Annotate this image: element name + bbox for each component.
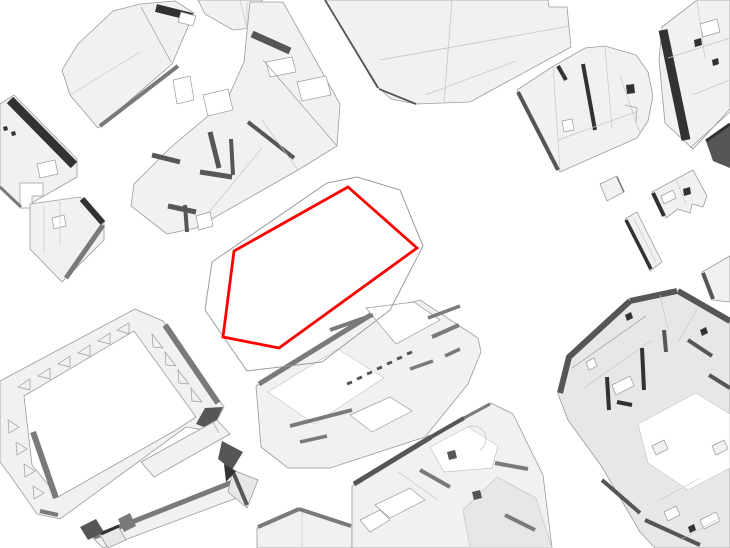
block-courtyard-u — [0, 309, 224, 519]
block-bar-east — [625, 212, 662, 271]
block-bar-east-shape — [625, 212, 662, 271]
block-striped-shape — [367, 372, 372, 374]
block-small-rect-shape — [600, 176, 624, 201]
block-bottom-right-mega-shape — [607, 377, 609, 410]
block-center-left-complex-shape — [231, 139, 233, 175]
block-left-second — [30, 197, 104, 282]
block-bottom-right-mega-shape — [664, 330, 666, 352]
block-striped-shape — [387, 362, 392, 364]
block-top-right-mid-shape — [626, 84, 635, 94]
block-center-left-complex-shape — [185, 205, 187, 232]
block-striped-shape — [377, 367, 382, 369]
block-striped-shape — [347, 382, 352, 384]
block-small-rect — [600, 176, 624, 201]
map-canvas[interactable] — [0, 0, 730, 548]
block-bottom-right-mega — [558, 290, 730, 548]
block-diagonal-bars-shape — [218, 441, 243, 470]
block-diagonal-bars-shape — [257, 508, 352, 548]
block-top-left-shape — [62, 1, 194, 128]
block-striped-shape — [397, 357, 402, 359]
block-striped-shape — [357, 377, 362, 379]
block-top-right-tall — [659, 0, 730, 149]
block-top-right-mid-shape — [562, 119, 574, 132]
block-right-edge-south — [702, 256, 730, 302]
block-small-east — [652, 170, 707, 218]
block-striped-shape — [407, 352, 412, 354]
app-root — [0, 0, 730, 548]
block-center-left-complex-shape — [173, 76, 194, 104]
block-left-dark — [0, 95, 77, 208]
block-bottom-right-mega-shape — [642, 348, 644, 390]
